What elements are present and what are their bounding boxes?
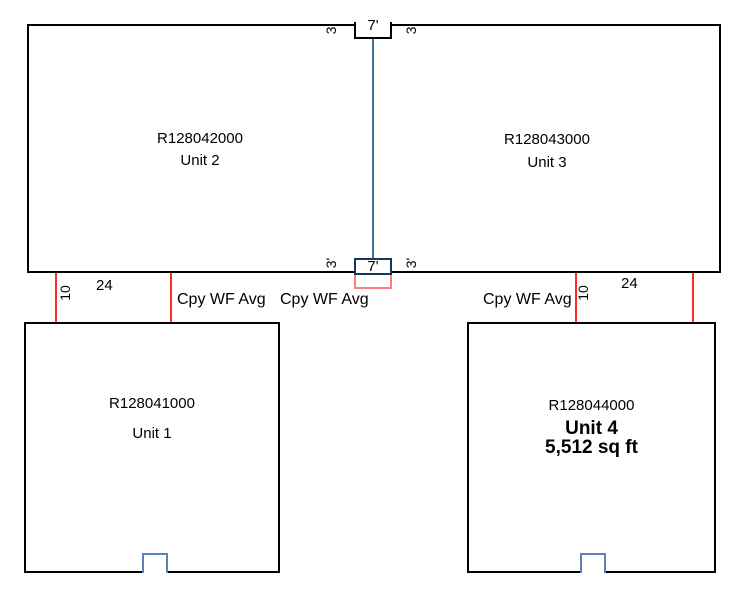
unit3-label: R128043000 Unit 3 xyxy=(373,128,721,174)
sketch-canvas: 7' 7' 3' 3' 3' 3' 10 10 24 24 Cpy WF Avg… xyxy=(0,0,746,595)
connector-line-right-outer xyxy=(692,273,694,322)
unit2-label: R128042000 Unit 2 xyxy=(27,128,373,172)
parcel-id-unit1: R128041000 xyxy=(24,389,280,419)
parcel-id-unit3: R128043000 xyxy=(373,128,721,151)
entry-door-icon-unit4 xyxy=(580,553,606,573)
dimension-10ft-left: 10 xyxy=(53,281,77,305)
unit-name-unit4: Unit 4 xyxy=(467,419,716,438)
wall-note-cpy-wf-avg-2: Cpy WF Avg xyxy=(280,291,369,309)
parcel-id-unit2: R128042000 xyxy=(27,128,373,150)
dimension-3ft-mid-right: 3' xyxy=(399,251,423,275)
dimension-3ft-top-right: 3' xyxy=(399,17,423,41)
unit-name-unit2: Unit 2 xyxy=(27,150,373,172)
dimension-24ft-left: 24 xyxy=(96,277,113,294)
porch-box: 7' xyxy=(354,258,392,275)
dimension-24ft-right: 24 xyxy=(621,275,638,292)
unit-name-unit1: Unit 1 xyxy=(24,419,280,449)
wall-note-cpy-wf-avg-3: Cpy WF Avg xyxy=(483,291,572,309)
dimension-3ft-mid-left: 3' xyxy=(319,251,343,275)
connector-line-left-inner xyxy=(170,273,172,322)
dimension-10ft-right: 10 xyxy=(571,281,595,305)
unit-area-unit4: 5,512 sq ft xyxy=(467,438,716,457)
porch-box-lower xyxy=(354,275,392,289)
dimension-porch-width-top: 7' xyxy=(354,17,392,34)
unit1-label: R128041000 Unit 1 xyxy=(24,389,280,449)
entry-door-icon-unit1 xyxy=(142,553,168,573)
unit-name-unit3: Unit 3 xyxy=(373,151,721,174)
parcel-id-unit4: R128044000 xyxy=(467,397,716,415)
dimension-3ft-top-left: 3' xyxy=(319,17,343,41)
unit4-label: R128044000 Unit 4 5,512 sq ft xyxy=(467,397,716,457)
wall-note-cpy-wf-avg-1: Cpy WF Avg xyxy=(177,291,266,309)
